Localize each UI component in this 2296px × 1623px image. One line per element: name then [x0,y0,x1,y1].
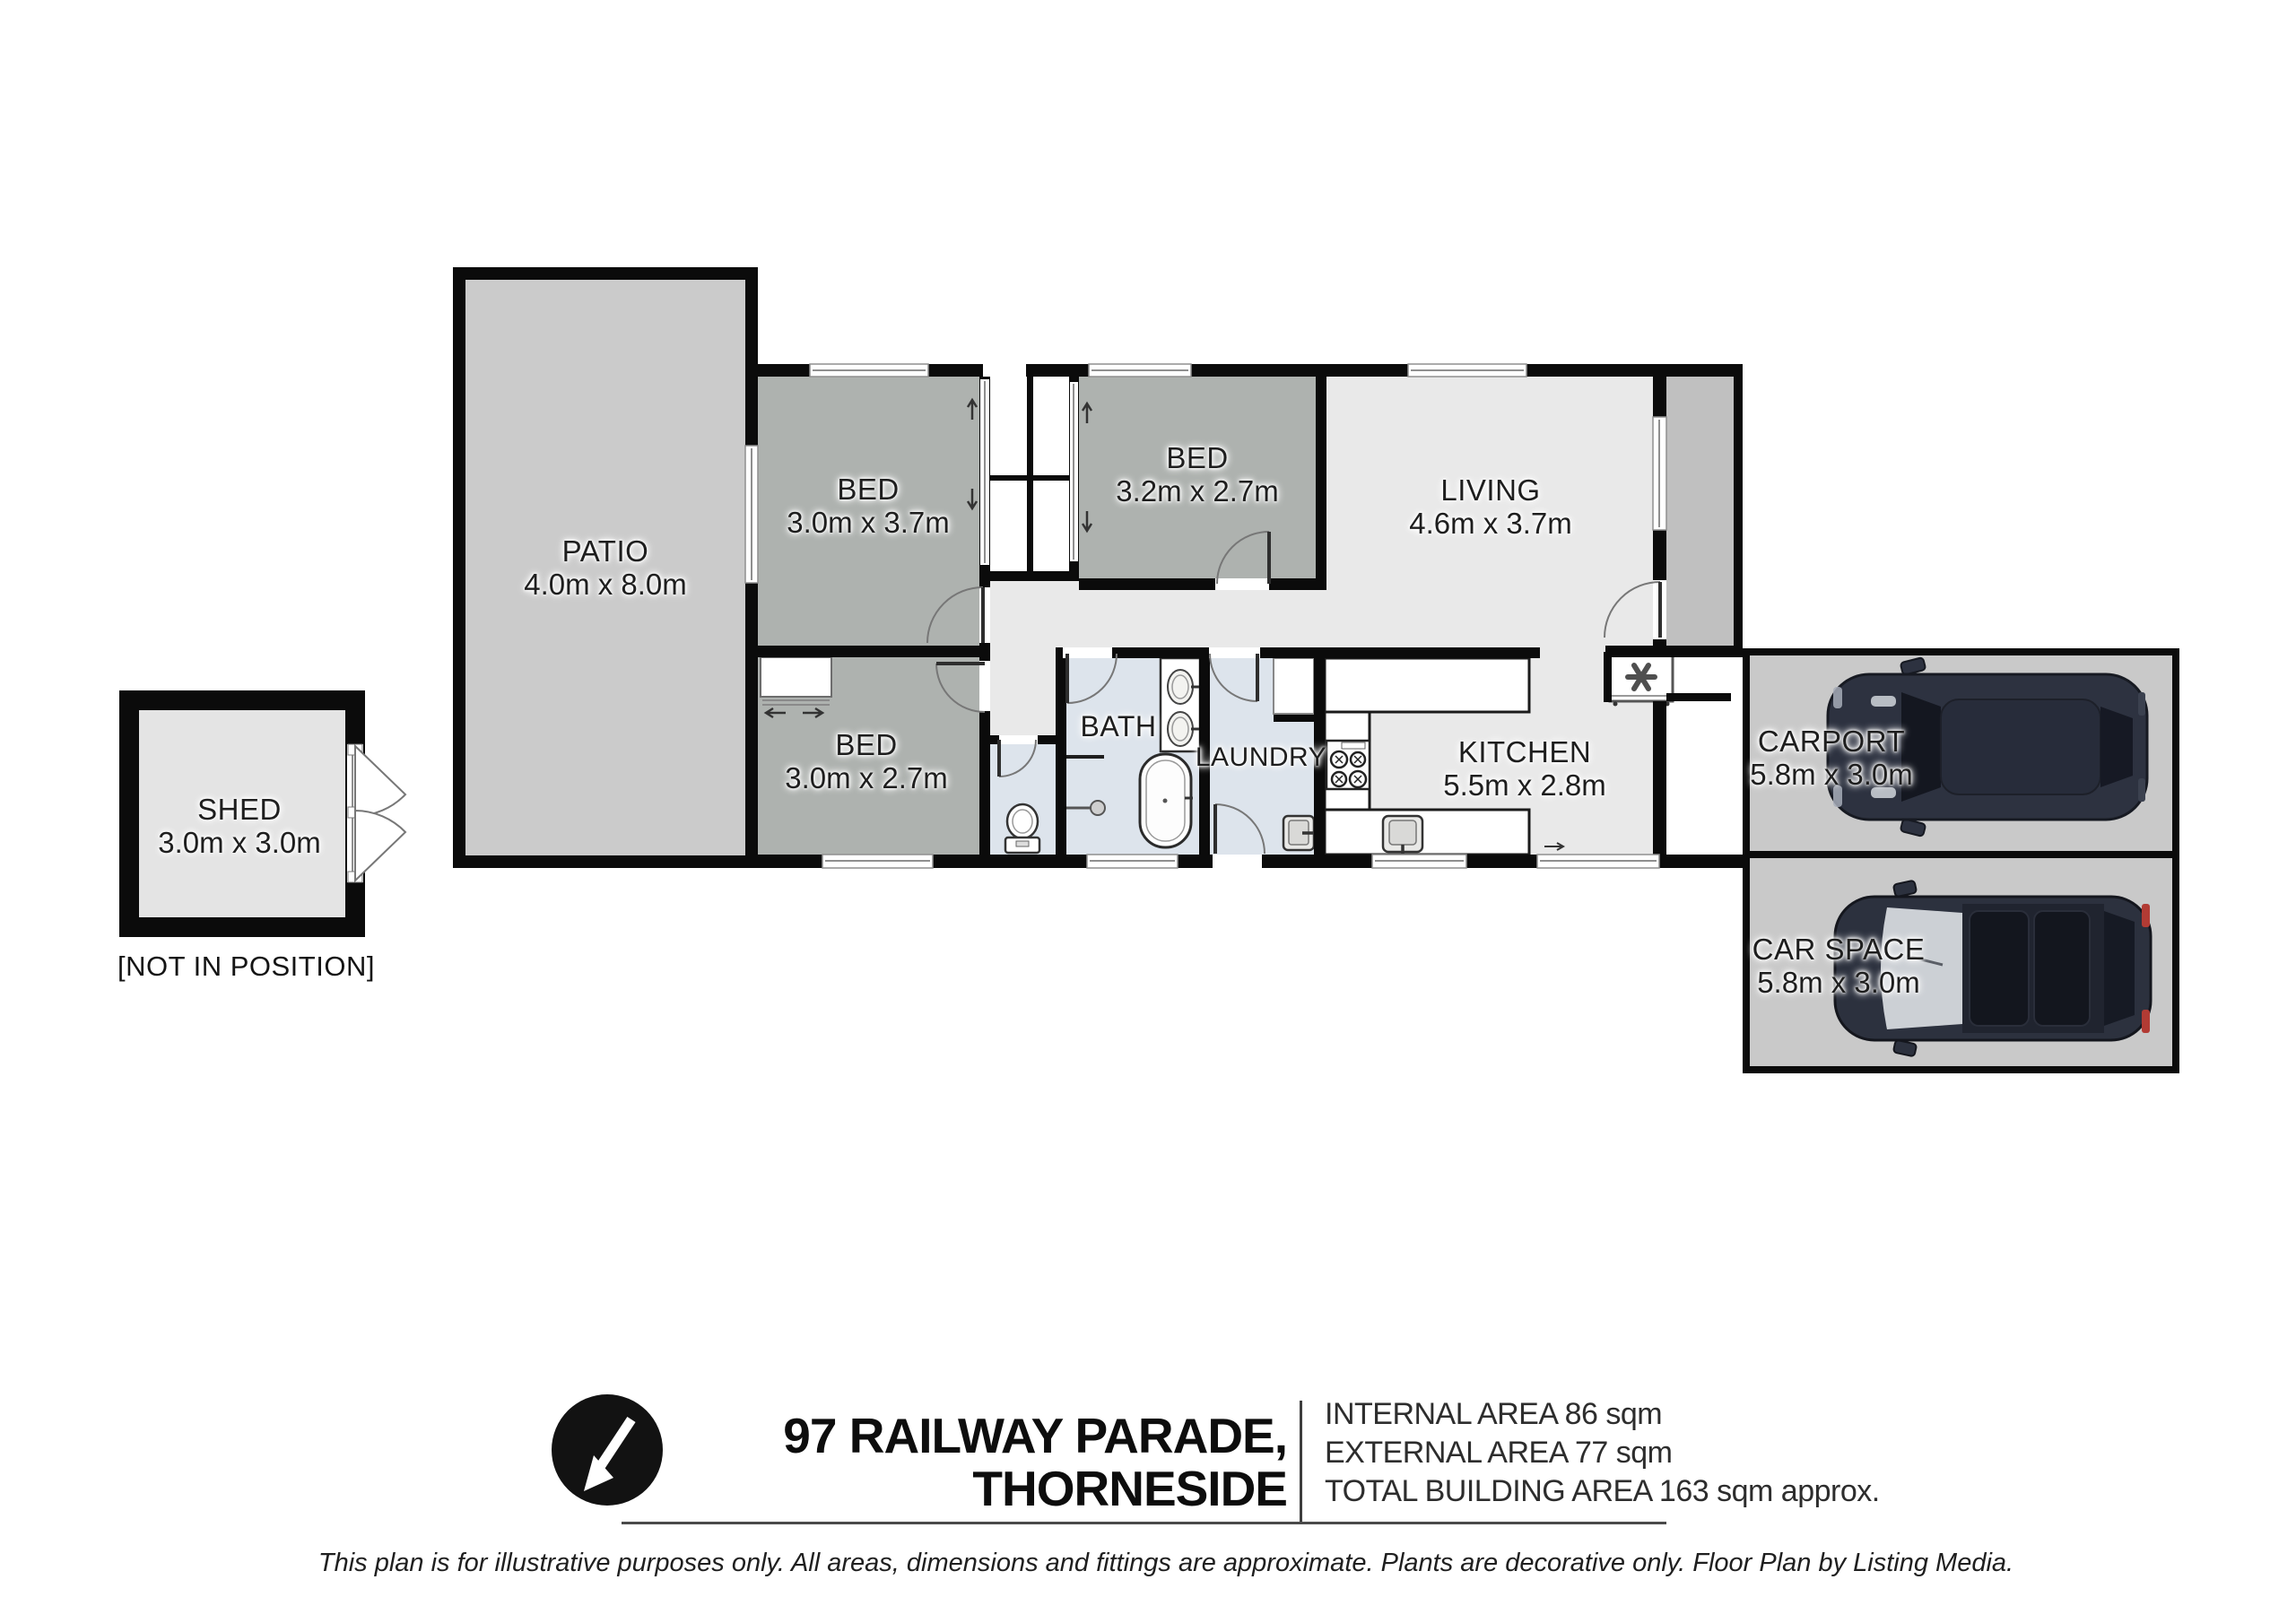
window [1372,855,1466,868]
external-area: EXTERNAL AREA 77 sqm [1325,1434,1880,1472]
room-label-patio: PATIO 4.0m x 8.0m [524,534,687,601]
closet-cell [987,377,1027,475]
floorplan-page: PATIO 4.0m x 8.0m BED 3.0m x 3.7m BED 3.… [0,0,2296,1623]
floorplan-drawing [0,0,2296,1623]
shed-position-note: [NOT IN POSITION] [117,950,375,983]
internal-area: INTERNAL AREA 86 sqm [1325,1395,1880,1434]
disclaimer-text: This plan is for illustrative purposes o… [18,1549,2296,1578]
room-label-bath: BATH [1081,710,1157,743]
cooktop-icon [1326,741,1370,789]
bathtub-icon [1140,754,1193,847]
address-line1: 97 RAILWAY PARADE, [628,1410,1287,1462]
room-label-car-space: CAR SPACE 5.8m x 3.0m [1752,933,1926,999]
window [1087,855,1178,868]
window [1089,364,1191,377]
closet-cell [1033,377,1069,475]
kitchen-counter-bottom [1325,810,1529,855]
room-label-laundry: LAUNDRY [1196,741,1326,774]
property-address: 97 RAILWAY PARADE, THORNESIDE [628,1410,1287,1515]
room-label-bed2: BED 3.2m x 2.7m [1116,441,1279,508]
footer-divider [1300,1401,1302,1524]
total-area: TOTAL BUILDING AREA 163 sqm approx. [1325,1472,1880,1511]
room-label-bed1: BED 3.0m x 3.7m [787,473,950,539]
toilet-icon [1005,804,1039,853]
area-summary: INTERNAL AREA 86 sqm EXTERNAL AREA 77 sq… [1325,1395,1880,1511]
window [1408,364,1526,377]
vanity-icon [1161,658,1200,751]
shed-double-doors [355,746,405,881]
room-label-bed3: BED 3.0m x 2.7m [785,728,948,794]
room-label-kitchen: KITCHEN 5.5m x 2.8m [1443,735,1606,802]
room-label-living: LIVING 4.6m x 3.7m [1409,473,1572,540]
address-line2: THORNESIDE [628,1462,1287,1515]
window [822,855,933,868]
room-label-carport: CARPORT 5.8m x 3.0m [1750,725,1913,791]
closet-cell [1033,481,1069,571]
closet-cell [987,481,1027,571]
window [1653,417,1666,530]
linen-cupboard [1274,658,1314,714]
laundry-trough-icon [1283,816,1317,850]
footer-rule [622,1522,1666,1524]
kitchen-sink-icon [1383,816,1422,859]
hot-water-icon [1610,654,1673,707]
porch-floor [1666,377,1734,646]
window [745,446,758,583]
kitchen-counter-top [1325,658,1529,712]
room-label-shed: SHED 3.0m x 3.0m [158,793,321,859]
window [810,364,928,377]
